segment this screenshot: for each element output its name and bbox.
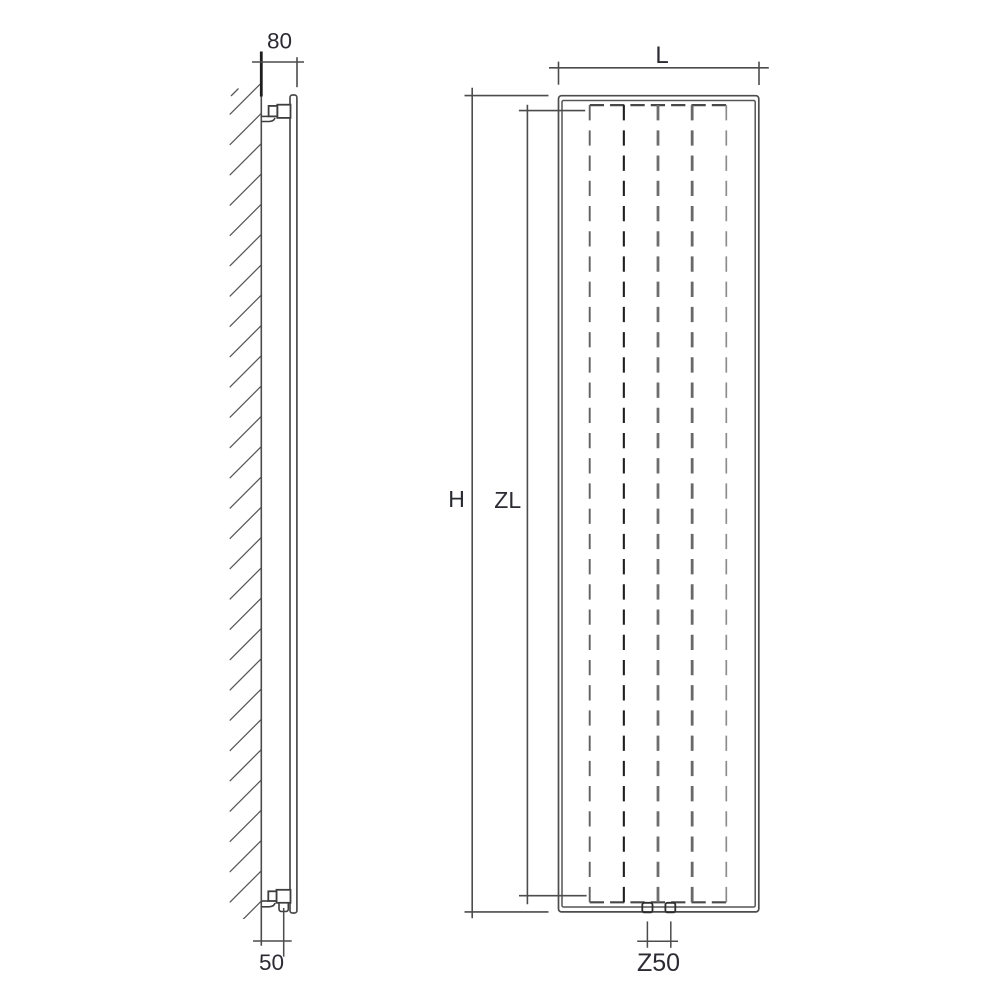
svg-text:80: 80: [267, 28, 292, 53]
svg-text:ZL: ZL: [494, 487, 521, 513]
svg-text:Z50: Z50: [637, 949, 680, 977]
svg-text:L: L: [655, 42, 668, 69]
svg-text:H: H: [448, 486, 465, 512]
svg-text:50: 50: [259, 950, 284, 975]
